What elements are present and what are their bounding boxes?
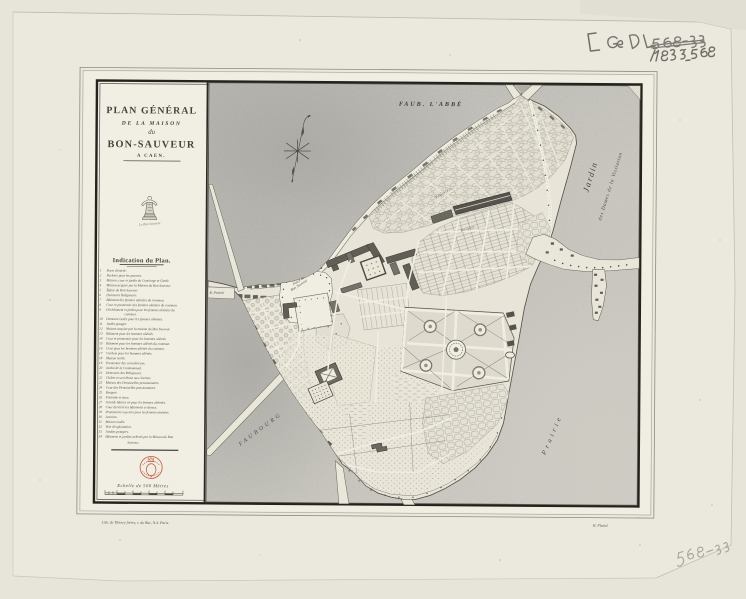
svg-text:3Maison, cour et jardin du Con: 3Maison, cour et jardin du Concierge et …: [100, 278, 170, 283]
svg-text:BON-SAUVEUR: BON-SAUVEUR: [108, 139, 196, 151]
svg-text:Echelle de 500 Mètres: Echelle de 500 Mètres: [116, 483, 169, 488]
svg-text:PLAN GÉNÉRAL: PLAN GÉNÉRAL: [106, 104, 197, 117]
svg-text:27Grande bâtisse en pour les f: 27Grande bâtisse en pour les femmes alié…: [99, 400, 167, 404]
svg-text:24Cour des Demoiselles pension: 24Cour des Demoiselles pensionnaires.: [99, 386, 157, 390]
svg-text:Sauveur.: Sauveur.: [127, 441, 139, 445]
svg-text:23Maison des Demoiselles pensi: 23Maison des Demoiselles pensionnaires.: [99, 381, 160, 385]
svg-text:20Jardin de la Communauté.: 20Jardin de la Communauté.: [99, 366, 142, 370]
svg-text:19Promenoir des convalescens.: 19Promenoir des convalescens.: [99, 361, 146, 365]
svg-text:34Bâtimens et jardins achetés: 34Bâtimens et jardins achetés par la Mai…: [98, 435, 173, 440]
svg-text:A CAEN.: A CAEN.: [137, 153, 166, 159]
svg-text:17Cachots pour les hommes alié: 17Cachots pour les hommes aliénés.: [99, 351, 152, 355]
svg-text:Indication du Plan.: Indication du Plan.: [113, 257, 171, 264]
svg-text:DE LA MAISON: DE LA MAISON: [121, 121, 182, 127]
svg-text:29Promenoirs couverts pour les: 29Promenoirs couverts pour les femmes al…: [99, 410, 170, 415]
svg-text:30Latrines.: 30Latrines.: [99, 415, 118, 419]
svg-text:9Dit bâtiment et jardin pour l: 9Dit bâtiment et jardin pour les femmes …: [99, 308, 175, 313]
svg-text:H. Plattel.: H. Plattel.: [592, 524, 609, 528]
svg-text:8Cour et promenoir des femmes: 8Cour et promenoir des femmes aliénées d…: [99, 303, 177, 308]
svg-text:28Cour derrière les bâtiments: 28Cour derrière les bâtiments ci-dessus.: [99, 405, 158, 409]
svg-text:22Cloître et sa tribune aux ci: 22Cloître et sa tribune aux citernes.: [99, 376, 152, 380]
svg-text:14Cour et promenoir pour les h: 14Cour et promenoir pour les hommes alié…: [99, 337, 167, 341]
svg-text:7Bâtiment des femmes aliénées: 7Bâtiment des femmes aliénées du commun.: [99, 298, 164, 302]
svg-text:21Demeures des Religieuses.: 21Demeures des Religieuses.: [99, 371, 142, 375]
svg-text:13Bâtiment pour les hommes ali: 13Bâtiment pour les hommes aliénés.: [99, 332, 154, 336]
svg-text:Lith. de Thierry frères, r. du: Lith. de Thierry frères, r. du Bac, N.4.…: [101, 521, 170, 526]
svg-text:15Bâtiment pour les hommes ali: 15Bâtiment pour les hommes aliénés du co…: [99, 341, 170, 346]
svg-text:FAUB. L'ABBÉ: FAUB. L'ABBÉ: [399, 100, 463, 108]
svg-text:10Demeure isolée pour les femm: 10Demeure isolée pour les femmes aliénée…: [99, 317, 163, 321]
svg-text:du: du: [148, 129, 155, 136]
svg-text:2Parloirs pour les pauvres.: 2Parloirs pour les pauvres.: [100, 273, 143, 277]
svg-text:commun.: commun.: [124, 312, 137, 316]
svg-text:25Bosquet.: 25Bosquet.: [99, 390, 118, 394]
svg-text:R. Prairie: R. Prairie: [208, 291, 224, 295]
svg-text:16Cour pour les hommes aliénés: 16Cour pour les hommes aliénés du commun…: [99, 346, 165, 350]
svg-text:4Maison acquise par la Maison: 4Maison acquise par la Maison du Bon Sau…: [99, 283, 171, 288]
svg-text:12Maison acquise par la maison: 12Maison acquise par la maison du Bon Sa…: [99, 327, 170, 332]
